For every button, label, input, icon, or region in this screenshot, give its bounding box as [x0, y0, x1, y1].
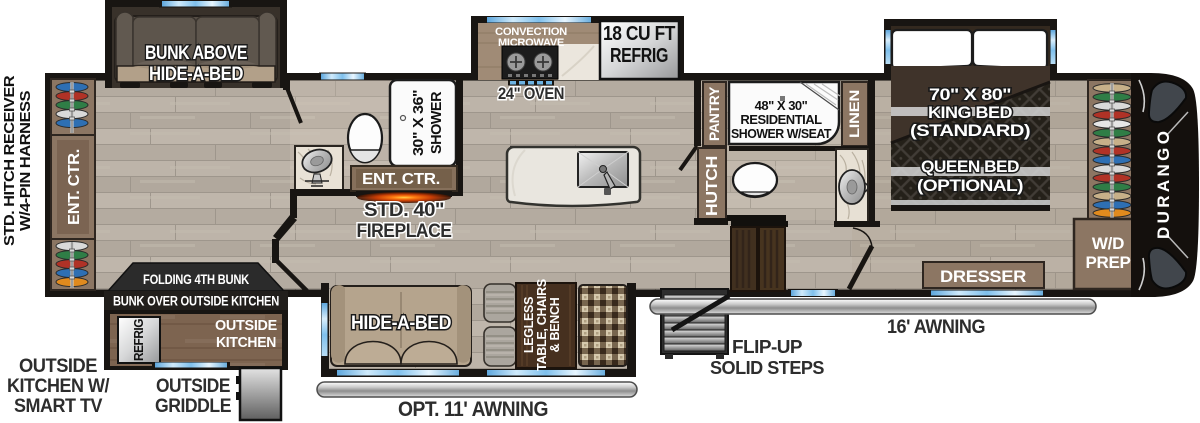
svg-text:RESIDENTIAL: RESIDENTIAL	[740, 112, 822, 127]
svg-text:REFRIG: REFRIG	[132, 319, 146, 361]
svg-text:16' AWNING: 16' AWNING	[887, 317, 985, 338]
svg-text:48" X 30": 48" X 30"	[755, 98, 808, 113]
svg-text:HUTCH: HUTCH	[704, 156, 721, 216]
svg-text:QUEEN BED: QUEEN BED	[921, 157, 1019, 176]
svg-text:TABLE, CHAIRS: TABLE, CHAIRS	[535, 279, 549, 371]
svg-text:ENT. CTR.: ENT. CTR.	[362, 171, 440, 188]
svg-text:SHOWER W/SEAT: SHOWER W/SEAT	[731, 126, 832, 141]
svg-text:PREP: PREP	[1085, 253, 1130, 272]
svg-text:& BENCH: & BENCH	[548, 297, 562, 352]
svg-text:STD. HITCH RECEIVER: STD. HITCH RECEIVER	[1, 75, 18, 246]
svg-text:18 CU FT: 18 CU FT	[603, 23, 675, 45]
svg-text:SOLID STEPS: SOLID STEPS	[710, 358, 824, 378]
svg-text:LEGLESS: LEGLESS	[522, 297, 536, 353]
svg-text:ENT. CTR.: ENT. CTR.	[66, 149, 83, 225]
svg-text:KING BED: KING BED	[928, 103, 1012, 122]
svg-text:GRIDDLE: GRIDDLE	[155, 396, 231, 417]
svg-text:SHOWER: SHOWER	[428, 91, 445, 154]
svg-text:FOLDING 4TH BUNK: FOLDING 4TH BUNK	[143, 272, 249, 287]
svg-text:W/D: W/D	[1092, 234, 1124, 253]
svg-text:KITCHEN W/: KITCHEN W/	[7, 376, 110, 397]
svg-text:W/4-PIN HARNESS: W/4-PIN HARNESS	[17, 90, 34, 231]
svg-text:BUNK ABOVE: BUNK ABOVE	[145, 43, 247, 64]
svg-text:PANTRY: PANTRY	[706, 86, 722, 141]
svg-text:REFRIG: REFRIG	[610, 45, 668, 67]
svg-text:30" X 36": 30" X 36"	[410, 90, 427, 156]
svg-text:BUNK OVER OUTSIDE KITCHEN: BUNK OVER OUTSIDE KITCHEN	[113, 294, 279, 309]
svg-text:FIREPLACE: FIREPLACE	[357, 221, 452, 242]
svg-text:LINEN: LINEN	[846, 90, 862, 138]
svg-text:(STANDARD): (STANDARD)	[910, 121, 1030, 140]
svg-text:OUTSIDE: OUTSIDE	[19, 356, 97, 377]
svg-text:OUTSIDE: OUTSIDE	[156, 376, 230, 397]
svg-text:FLIP-UP: FLIP-UP	[732, 337, 803, 357]
svg-text:DRESSER: DRESSER	[940, 267, 1026, 286]
svg-text:(OPTIONAL): (OPTIONAL)	[917, 176, 1023, 195]
svg-text:70" X 80": 70" X 80"	[929, 85, 1011, 104]
svg-text:STD. 40": STD. 40"	[364, 200, 444, 221]
svg-text:24" OVEN: 24" OVEN	[498, 84, 564, 103]
svg-text:OUTSIDE: OUTSIDE	[215, 318, 278, 334]
svg-text:HIDE-A-BED: HIDE-A-BED	[149, 64, 243, 85]
svg-text:SMART TV: SMART TV	[14, 396, 103, 417]
svg-text:OPT. 11' AWNING: OPT. 11' AWNING	[398, 398, 548, 421]
svg-text:HIDE-A-BED: HIDE-A-BED	[351, 313, 451, 334]
svg-text:KITCHEN: KITCHEN	[216, 335, 276, 351]
